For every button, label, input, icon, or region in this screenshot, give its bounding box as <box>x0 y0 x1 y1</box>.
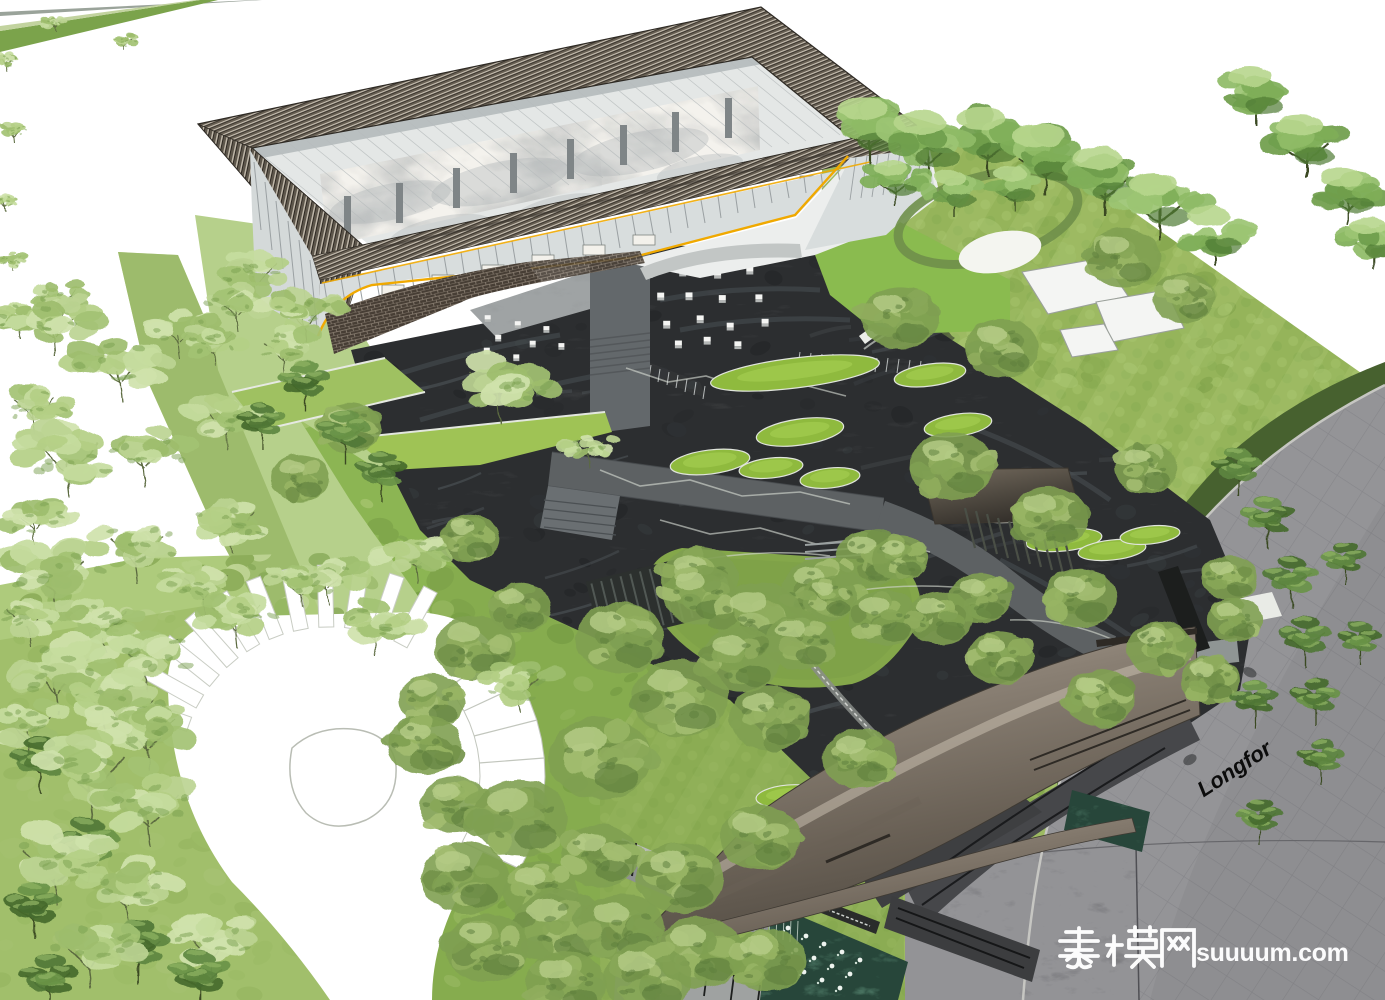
svg-text:suuuum.com: suuuum.com <box>1196 939 1349 967</box>
